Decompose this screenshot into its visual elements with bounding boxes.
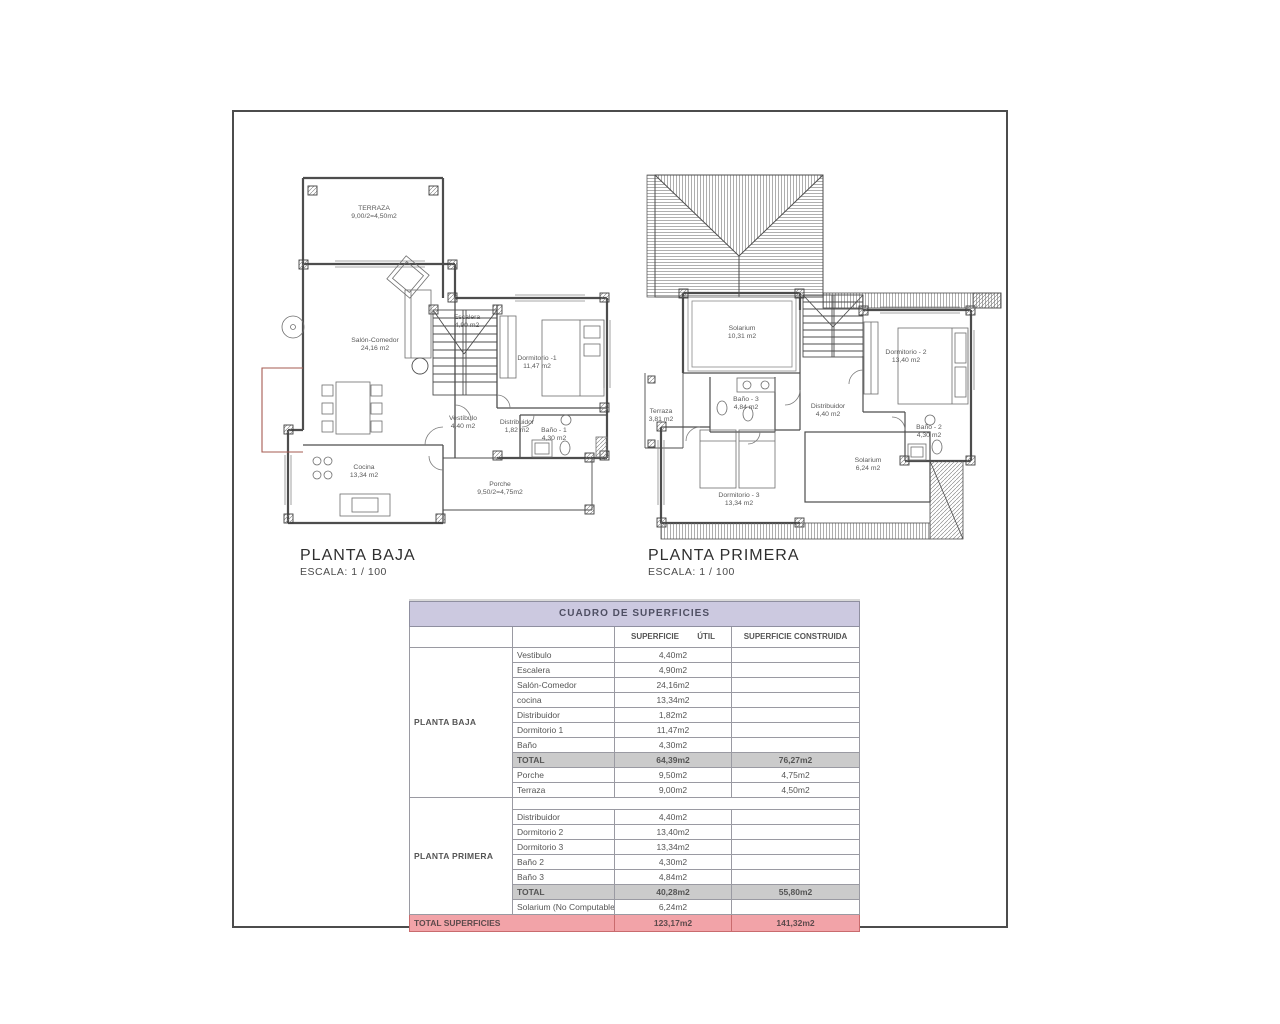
room-name-cell: Baño 3 bbox=[513, 870, 615, 885]
cons-cell bbox=[732, 855, 860, 870]
room-label: Escalera bbox=[454, 314, 481, 321]
util-cell: 11,47m2 bbox=[615, 723, 732, 738]
baja-columns bbox=[284, 186, 609, 523]
util-cell: 40,28m2 bbox=[615, 885, 732, 900]
cons-cell bbox=[732, 738, 860, 753]
cons-cell bbox=[732, 693, 860, 708]
room-name-cell: Escalera bbox=[513, 663, 615, 678]
room-label: 1,82 m2 bbox=[505, 427, 530, 434]
util-cell: 6,24m2 bbox=[615, 900, 732, 915]
room-label: 13,40 m2 bbox=[892, 357, 921, 364]
cons-cell bbox=[732, 678, 860, 693]
room-label: Dormitorio - 2 bbox=[885, 349, 926, 356]
room-label: Baño - 3 bbox=[733, 396, 759, 403]
room-label: Solarium bbox=[729, 325, 756, 332]
cons-cell bbox=[732, 708, 860, 723]
cons-cell bbox=[732, 810, 860, 825]
cons-cell bbox=[732, 900, 860, 915]
spacer-row: PLANTA PRIMERA bbox=[410, 798, 860, 810]
floor-label-baja: PLANTA BAJA bbox=[410, 648, 513, 798]
util-cell: 1,82m2 bbox=[615, 708, 732, 723]
room-label: 3,81 m2 bbox=[649, 416, 674, 423]
cons-cell: 4,75m2 bbox=[732, 768, 860, 783]
util-cell: 4,30m2 bbox=[615, 855, 732, 870]
architectural-sheet: TERRAZA 9,00/2=4,50m2 Salón-Comedor 24,1… bbox=[0, 0, 1280, 1024]
util-cell: 13,40m2 bbox=[615, 825, 732, 840]
baja-interior-walls bbox=[303, 298, 607, 523]
cons-cell bbox=[732, 870, 860, 885]
room-label: Baño - 1 bbox=[541, 427, 567, 434]
util-cell: 13,34m2 bbox=[615, 693, 732, 708]
room-name-cell: Terraza bbox=[513, 783, 615, 798]
floor-label-primera: PLANTA PRIMERA bbox=[410, 798, 513, 915]
room-label: 24,16 m2 bbox=[361, 345, 390, 352]
room-label: Terraza bbox=[650, 408, 673, 415]
room-name-cell: Vestibulo bbox=[513, 648, 615, 663]
util-cell: 24,16m2 bbox=[615, 678, 732, 693]
room-name-cell: Distribuidor bbox=[513, 810, 615, 825]
room-label: 4,90 m2 bbox=[455, 322, 480, 329]
cons-cell bbox=[732, 723, 860, 738]
util-cell: 9,50m2 bbox=[615, 768, 732, 783]
room-label: Dormitorio - 3 bbox=[718, 492, 759, 499]
room-label: 4,40 m2 bbox=[451, 423, 476, 430]
room-name-cell: TOTAL bbox=[513, 753, 615, 768]
baja-room-labels: TERRAZA 9,00/2=4,50m2 Salón-Comedor 24,1… bbox=[350, 205, 567, 496]
room-label: Salón-Comedor bbox=[351, 337, 399, 344]
room-label: Vestíbulo bbox=[449, 415, 477, 422]
table-header-row: SUPERFICIE ÚTIL SUPERFICIE CONSTRUIDA bbox=[410, 627, 860, 648]
room-name-cell: Dormitorio 1 bbox=[513, 723, 615, 738]
baja-left-bay bbox=[262, 368, 303, 452]
table-title: CUADRO DE SUPERFICIES bbox=[410, 602, 860, 627]
room-name-cell: Baño bbox=[513, 738, 615, 753]
room-label: Distribuidor bbox=[500, 419, 535, 426]
cons-cell: 4,50m2 bbox=[732, 783, 860, 798]
grand-cons-cell: 141,32m2 bbox=[732, 915, 860, 932]
cons-cell bbox=[732, 825, 860, 840]
floor-plan-primera: Solarium 10,31 m2 Dormitorio - 2 13,40 m… bbox=[645, 175, 1001, 539]
room-label: 10,31 m2 bbox=[728, 333, 757, 340]
room-label: 6,24 m2 bbox=[856, 465, 881, 472]
table-title-row: CUADRO DE SUPERFICIES bbox=[410, 602, 860, 627]
room-label: 4,84 m2 bbox=[734, 404, 759, 411]
room-name-cell: cocina bbox=[513, 693, 615, 708]
room-label: Baño - 2 bbox=[916, 424, 942, 431]
cons-cell bbox=[732, 648, 860, 663]
room-label: 13,34 m2 bbox=[725, 500, 754, 507]
room-label: 4,30 m2 bbox=[542, 435, 567, 442]
room-label: 13,34 m2 bbox=[350, 472, 379, 479]
header-util: SUPERFICIE ÚTIL bbox=[615, 627, 732, 648]
header-construida: SUPERFICIE CONSTRUIDA bbox=[732, 627, 860, 648]
room-label: 4,30 m2 bbox=[917, 432, 942, 439]
primera-room-labels: Solarium 10,31 m2 Dormitorio - 2 13,40 m… bbox=[649, 325, 942, 507]
baja-title: PLANTA BAJA bbox=[300, 547, 416, 565]
floor-plan-baja: TERRAZA 9,00/2=4,50m2 Salón-Comedor 24,1… bbox=[262, 178, 610, 523]
util-cell: 64,39m2 bbox=[615, 753, 732, 768]
room-name-cell: Solarium (No Computable) bbox=[513, 900, 615, 915]
primera-bottom-roof bbox=[661, 461, 963, 539]
room-label: Cocina bbox=[353, 464, 374, 471]
header-empty-cell bbox=[513, 627, 615, 648]
table-row: PLANTA BAJA Vestibulo 4,40m2 bbox=[410, 648, 860, 663]
util-cell: 9,00m2 bbox=[615, 783, 732, 798]
grand-total-label: TOTAL SUPERFICIES bbox=[410, 915, 615, 932]
util-cell: 4,40m2 bbox=[615, 648, 732, 663]
cons-cell: 55,80m2 bbox=[732, 885, 860, 900]
room-label: 9,00/2=4,50m2 bbox=[351, 213, 397, 220]
surfaces-table: CUADRO DE SUPERFICIES SUPERFICIE ÚTIL SU… bbox=[409, 601, 860, 932]
cons-cell: 76,27m2 bbox=[732, 753, 860, 768]
room-name-cell: Dormitorio 2 bbox=[513, 825, 615, 840]
primera-title: PLANTA PRIMERA bbox=[648, 547, 800, 565]
room-label: Dormitorio -1 bbox=[517, 355, 556, 362]
room-name-cell: TOTAL bbox=[513, 885, 615, 900]
room-label: Porche bbox=[489, 481, 511, 488]
room-label: TERRAZA bbox=[358, 205, 390, 212]
room-name-cell: Porche bbox=[513, 768, 615, 783]
cons-cell bbox=[732, 663, 860, 678]
baja-scale: ESCALA: 1 / 100 bbox=[300, 566, 387, 578]
room-label: 4,40 m2 bbox=[816, 411, 841, 418]
room-label: 11,47 m2 bbox=[523, 363, 551, 370]
header-empty-cell bbox=[410, 627, 513, 648]
util-cell: 4,30m2 bbox=[615, 738, 732, 753]
cons-cell bbox=[732, 840, 860, 855]
room-name-cell: Salón-Comedor bbox=[513, 678, 615, 693]
room-name-cell: Baño 2 bbox=[513, 855, 615, 870]
primera-scale: ESCALA: 1 / 100 bbox=[648, 566, 735, 578]
room-name-cell: Distribuidor bbox=[513, 708, 615, 723]
room-name-cell: Dormitorio 3 bbox=[513, 840, 615, 855]
spacer-cell bbox=[513, 798, 860, 810]
util-cell: 4,40m2 bbox=[615, 810, 732, 825]
grand-total-row: TOTAL SUPERFICIES 123,17m2 141,32m2 bbox=[410, 915, 860, 932]
util-cell: 4,90m2 bbox=[615, 663, 732, 678]
room-label: Solarium bbox=[855, 457, 882, 464]
util-cell: 13,34m2 bbox=[615, 840, 732, 855]
room-label: Distribuidor bbox=[811, 403, 846, 410]
primera-doors bbox=[686, 370, 905, 444]
util-cell: 4,84m2 bbox=[615, 870, 732, 885]
baja-porch-outline bbox=[443, 458, 592, 510]
baja-exterior-walls bbox=[288, 178, 607, 523]
room-label: 9,50/2=4,75m2 bbox=[477, 489, 523, 496]
primera-roof bbox=[647, 175, 823, 297]
grand-util-cell: 123,17m2 bbox=[615, 915, 732, 932]
